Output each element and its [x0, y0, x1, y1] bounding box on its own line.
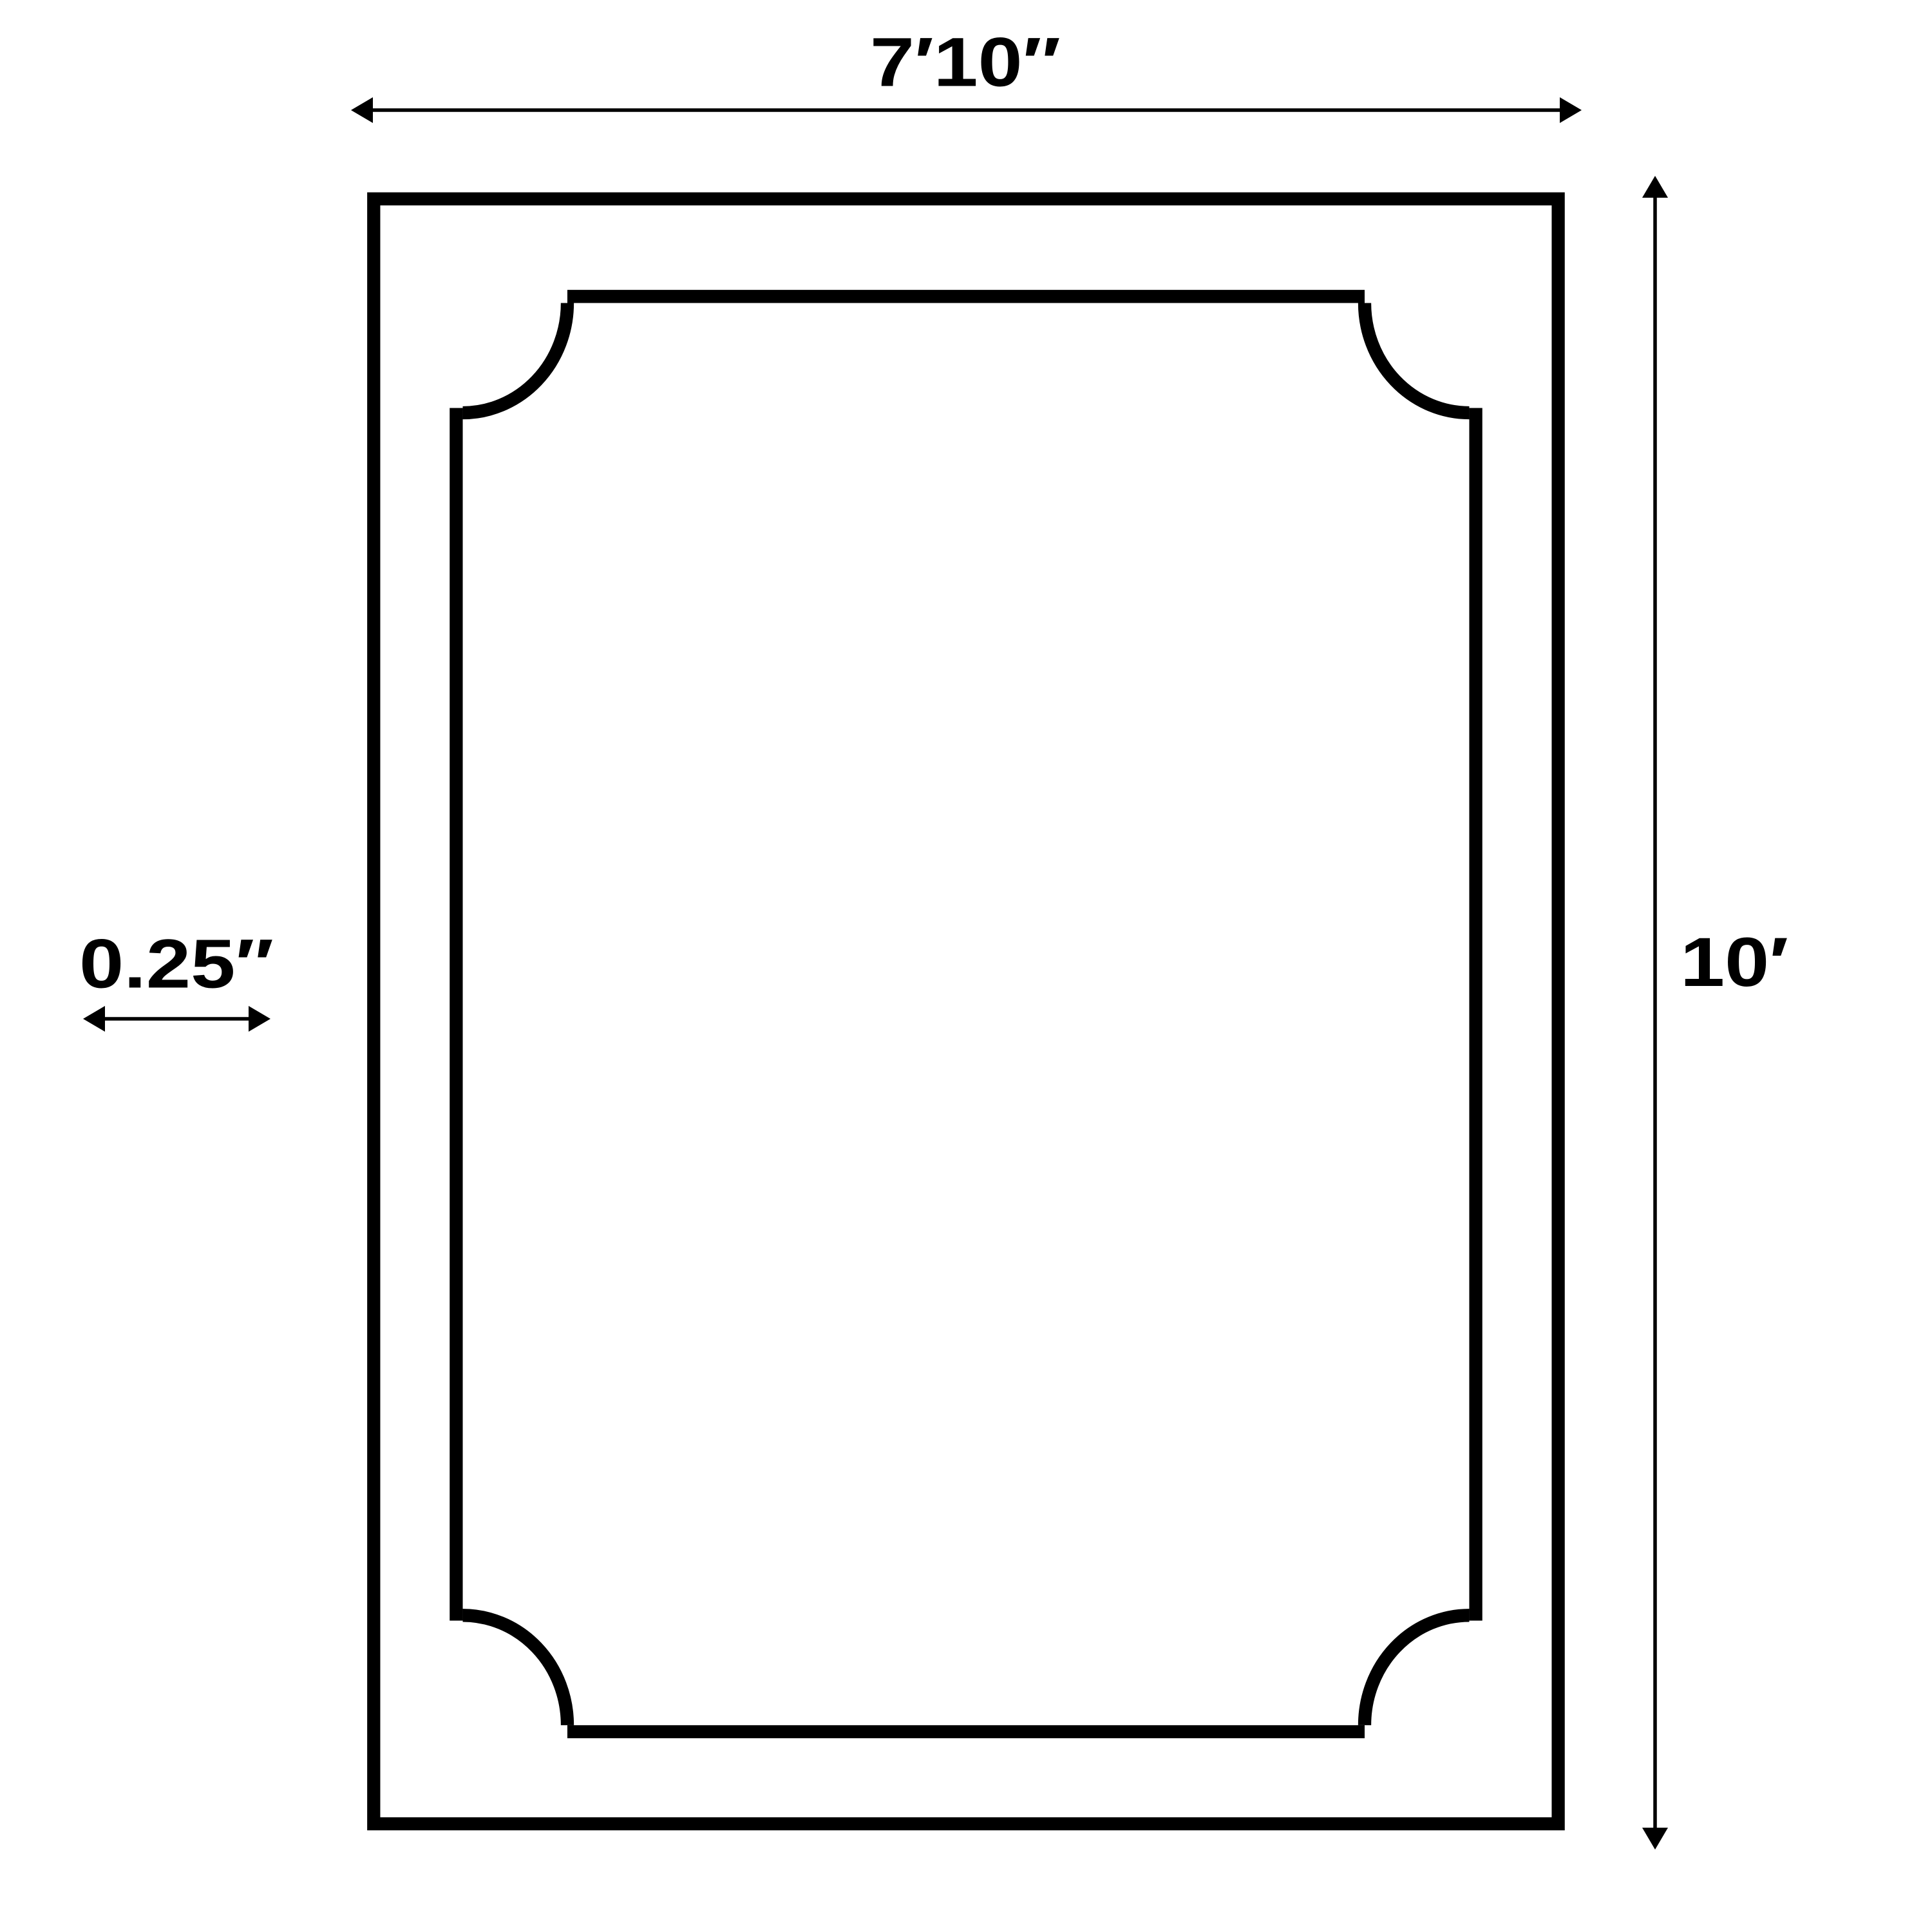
- svg-text:7′10″: 7′10″: [870, 23, 1061, 101]
- svg-text:0.25″: 0.25″: [79, 925, 274, 1003]
- svg-text:10′: 10′: [1680, 923, 1788, 1001]
